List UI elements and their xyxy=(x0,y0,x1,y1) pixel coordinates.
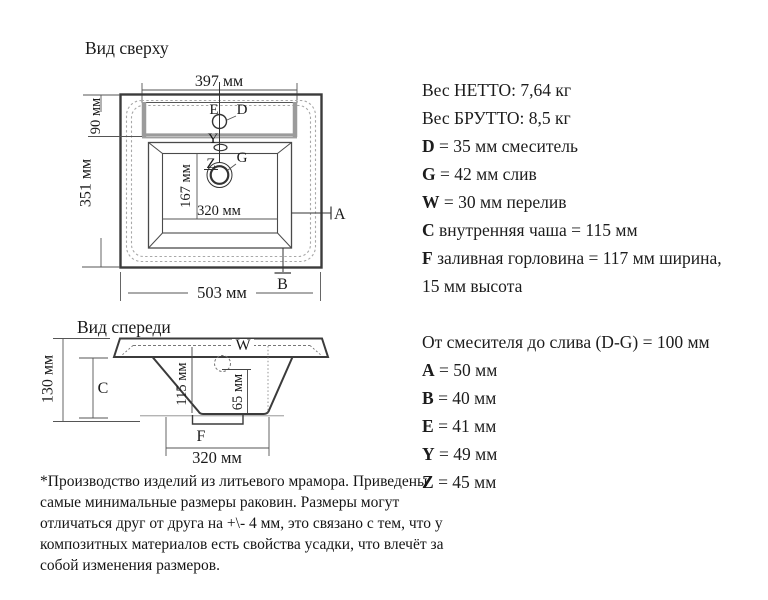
sink-spec-sheet: Вид сверху 397 мм xyxy=(0,0,768,600)
spec-key: D xyxy=(422,136,435,156)
footnote-line: *Производство изделий из литьевого мрамо… xyxy=(40,471,440,492)
spec-line: Y = 49 мм xyxy=(422,440,762,468)
top-view-title: Вид сверху xyxy=(85,38,169,58)
dim-115-label: 115 мм xyxy=(174,362,190,405)
spec-text: = 49 мм xyxy=(435,444,498,464)
production-footnote: *Производство изделий из литьевого мрамо… xyxy=(40,471,440,576)
spec-key: W xyxy=(422,192,440,212)
spec-text: = 42 мм слив xyxy=(436,164,537,184)
dim-351-label: 351 мм xyxy=(78,159,95,207)
label-w: W xyxy=(235,337,251,354)
dim-320-front-label: 320 мм xyxy=(192,448,242,467)
spec-key: F xyxy=(422,248,433,268)
footnote-line: композитных материалов есть свойства уса… xyxy=(40,534,440,555)
spec-line: F заливная горловина = 117 мм ширина, xyxy=(422,244,762,272)
label-a-leader xyxy=(292,207,332,220)
label-d-leader xyxy=(227,116,236,120)
label-c: C xyxy=(98,380,109,397)
filling-neck xyxy=(193,415,244,424)
label-b-leader xyxy=(275,248,292,273)
spec-panel: Вес НЕТТО: 7,64 кг Вес БРУТТО: 8,5 кг D … xyxy=(422,76,762,496)
spec-line: B = 40 мм xyxy=(422,384,762,412)
dim-503-label: 503 мм xyxy=(197,283,247,302)
label-e: E xyxy=(209,102,218,118)
spec-line: От смесителя до слива (D-G) = 100 мм xyxy=(422,328,762,356)
footnote-line: самые минимальные размеры раковин. Разме… xyxy=(40,492,440,513)
label-f: F xyxy=(197,428,206,445)
spec-text: внутренняя чаша = 115 мм xyxy=(435,220,638,240)
spec-line: C внутренняя чаша = 115 мм xyxy=(422,216,762,244)
spec-key: A xyxy=(422,360,435,380)
spec-text: Вес БРУТТО: 8,5 кг xyxy=(422,108,571,128)
label-g: G xyxy=(237,150,248,166)
spec-text: = 45 мм xyxy=(434,472,497,492)
spec-text: заливная горловина = 117 мм ширина, xyxy=(433,248,722,268)
spec-key: G xyxy=(422,164,436,184)
spec-line: Z = 45 мм xyxy=(422,468,762,496)
footnote-line: собой изменения размеров. xyxy=(40,555,440,576)
spec-text: = 30 мм перелив xyxy=(440,192,567,212)
front-view-title: Вид спереди xyxy=(77,317,171,337)
dim-90-label: 90 мм xyxy=(88,98,104,134)
spec-line: D = 35 мм смеситель xyxy=(422,132,762,160)
spec-line: Вес БРУТТО: 8,5 кг xyxy=(422,104,762,132)
label-y: Y xyxy=(208,131,219,147)
footnote-line: отличаться друг от друга на +\- 4 мм, эт… xyxy=(40,513,440,534)
spec-line-spacer xyxy=(422,300,762,328)
spec-key: C xyxy=(422,220,435,240)
dim-130-label: 130 мм xyxy=(40,355,57,403)
spec-key: B xyxy=(422,388,434,408)
label-b: B xyxy=(277,276,288,293)
spec-line: E = 41 мм xyxy=(422,412,762,440)
spec-text: От смесителя до слива (D-G) = 100 мм xyxy=(422,332,710,352)
dashed-contour-outer xyxy=(127,101,316,262)
dim-65-label: 65 мм xyxy=(230,374,246,410)
top-view: Вид сверху 397 мм xyxy=(78,38,347,302)
spec-text: = 41 мм xyxy=(434,416,497,436)
spec-key: Y xyxy=(422,444,435,464)
spec-line: 15 мм высота xyxy=(422,272,762,300)
spec-text: = 35 мм смеситель xyxy=(435,136,578,156)
label-a: A xyxy=(334,206,346,223)
spec-text: Вес НЕТТО: 7,64 кг xyxy=(422,80,571,100)
spec-text: 15 мм высота xyxy=(422,276,522,296)
spec-line: G = 42 мм слив xyxy=(422,160,762,188)
spec-text: = 50 мм xyxy=(435,360,498,380)
front-view: Вид спереди W 115 мм xyxy=(40,317,329,467)
dim-320-top-label: 320 мм xyxy=(197,203,241,219)
spec-text: = 40 мм xyxy=(434,388,497,408)
spec-line: Вес НЕТТО: 7,64 кг xyxy=(422,76,762,104)
rim-outline xyxy=(114,339,328,358)
spec-line: A = 50 мм xyxy=(422,356,762,384)
spec-key: E xyxy=(422,416,434,436)
label-d: D xyxy=(237,102,248,118)
spec-line: W = 30 мм перелив xyxy=(422,188,762,216)
dim-167-label: 167 мм xyxy=(178,164,194,208)
